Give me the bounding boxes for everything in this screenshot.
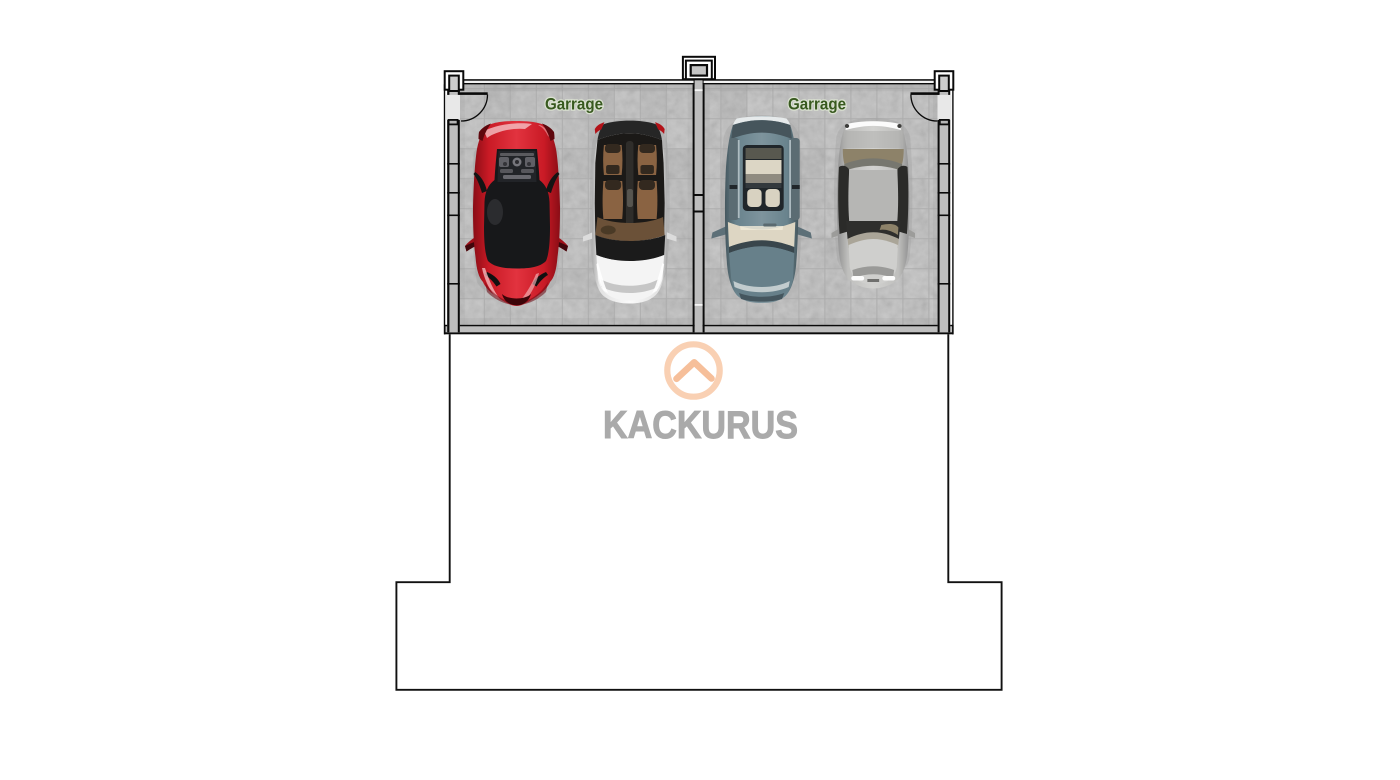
svg-text:Garrage: Garrage <box>545 96 603 114</box>
svg-text:KACKURUS: KACKURUS <box>603 404 798 447</box>
svg-text:Garrage: Garrage <box>788 96 846 114</box>
